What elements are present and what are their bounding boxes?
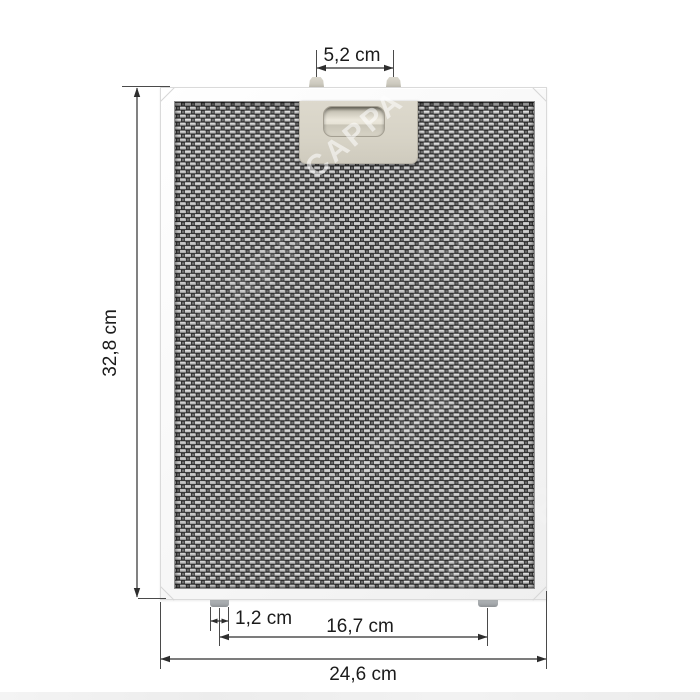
- handle-cutout: [323, 106, 385, 137]
- dim-label-peg-width: 1,2 cm: [235, 608, 292, 630]
- top-clip-left: [309, 77, 324, 87]
- frame-bevel-bottom-left: [160, 586, 174, 600]
- mesh-inner-shadow: [175, 102, 534, 588]
- dim-label-top-clip-spacing: 5,2 cm: [323, 45, 380, 67]
- dim-label-width: 24,6 cm: [329, 664, 397, 686]
- mesh-panel: [174, 101, 535, 589]
- dim-label-peg-spacing: 16,7 cm: [326, 616, 394, 638]
- product-dimension-diagram: CAPPA CAPPA CAPPA CAPPA CAPPA: [0, 0, 700, 700]
- watermark-band: [0, 692, 700, 700]
- filter-frame: [160, 87, 547, 600]
- frame-bevel-top-left: [160, 87, 174, 101]
- handle-plate: [299, 101, 418, 164]
- top-clip-right: [386, 77, 401, 87]
- bottom-peg-left: [210, 600, 229, 607]
- dim-label-height: 32,8 cm: [100, 309, 122, 377]
- bottom-peg-right: [478, 600, 498, 607]
- frame-bevel-top-right: [532, 87, 546, 101]
